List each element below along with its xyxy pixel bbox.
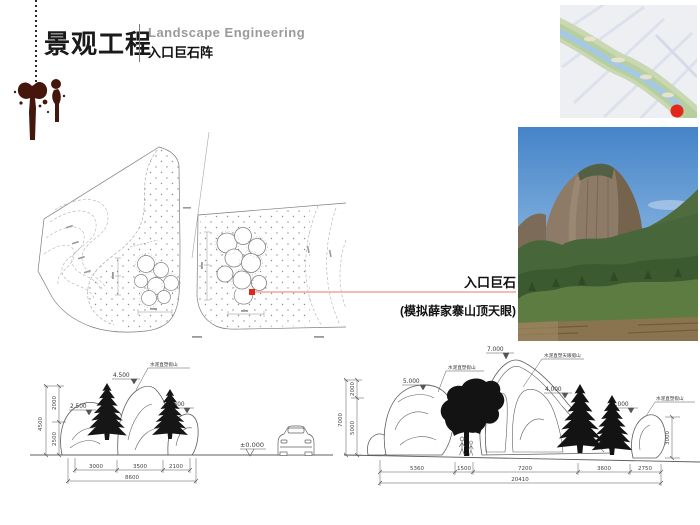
section-right-side-dim: 3000 (665, 415, 680, 460)
hdim: 2750 (638, 466, 652, 472)
vdim-total: 4500 (38, 417, 44, 431)
hdim: 1500 (457, 466, 471, 472)
hdim: 3600 (597, 466, 611, 472)
hdim: 5360 (410, 466, 424, 472)
material-label: 水泥直塑假山 (448, 364, 476, 371)
hdim: 3000 (89, 464, 103, 470)
hdim-total: 20410 (511, 477, 529, 483)
elev-mark: 2.500 (70, 404, 87, 410)
vdim: 2000 (350, 382, 356, 396)
slide-page: { "header": { "title_cn": "景观工程", "title… (0, 0, 700, 525)
plan2-contours (306, 206, 346, 326)
site-plan-detail (183, 132, 346, 338)
elev-mark: 7.000 (487, 347, 504, 353)
hdim-total: 8600 (125, 475, 139, 481)
material-label: 水泥直塑天眼假山 (544, 352, 581, 359)
hdim: 7200 (518, 466, 532, 472)
section-right: 5.000 7.000 4.000 3.000 水泥直塑假山 水泥直塑天眼假山 … (338, 347, 700, 486)
section-left-hdims: 3000 3500 2100 8600 (66, 458, 198, 484)
datum-symbol: ±0.000 (240, 441, 266, 456)
elev-mark: 4.000 (545, 387, 562, 393)
plan-marker-square (249, 289, 255, 295)
car-front-view (278, 426, 314, 456)
elev-mark: 4.500 (113, 373, 130, 379)
plan2-contour-labels (307, 246, 332, 257)
section-left: 2.500 4.500 2.500 水泥直塑假山 4500 2000 2500 (30, 361, 333, 484)
side-dim: 3000 (665, 431, 671, 445)
hdim: 2100 (169, 464, 183, 470)
vdim: 5000 (350, 421, 356, 435)
technical-drawings: 2.500 4.500 2.500 水泥直塑假山 4500 2000 2500 (0, 0, 700, 525)
section-right-vdims: 7000 2000 5000 (338, 378, 364, 457)
site-plan-overview (38, 147, 181, 332)
section-right-hdims: 5360 1500 7200 3600 2750 20410 (378, 460, 663, 486)
datum-label: ±0.000 (240, 441, 264, 449)
material-label: 水泥直塑假山 (656, 395, 684, 402)
small-rock (631, 415, 665, 458)
person-figure (459, 437, 465, 455)
elev-mark: 5.000 (403, 379, 420, 385)
section-left-material-label: 水泥直塑假山 (136, 361, 190, 390)
vdim: 2000 (52, 396, 58, 410)
vdim-total: 7000 (338, 413, 344, 427)
hdim: 3500 (133, 464, 147, 470)
vdim: 2500 (52, 432, 58, 446)
person-figure (469, 441, 474, 456)
material-label: 水泥直塑假山 (150, 361, 178, 368)
